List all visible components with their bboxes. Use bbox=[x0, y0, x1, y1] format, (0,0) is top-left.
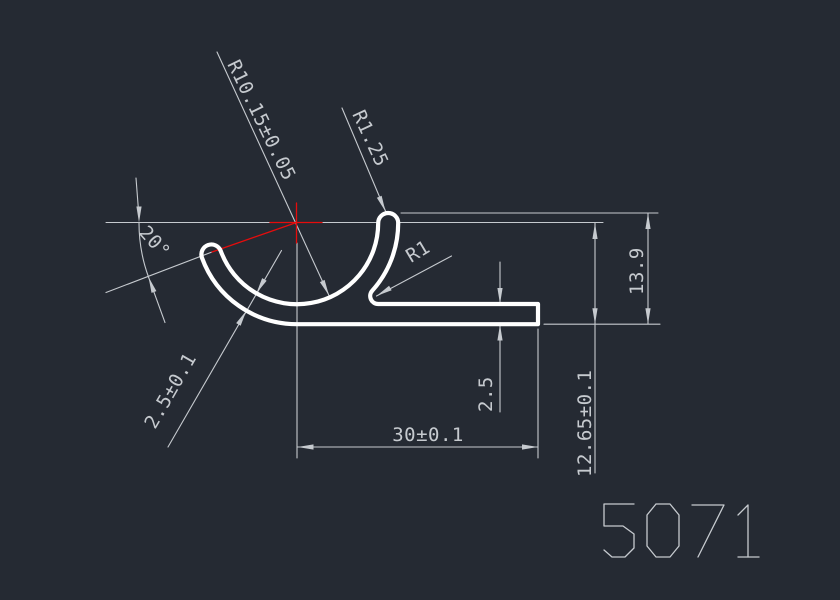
overall-height-label: 13.9 bbox=[626, 247, 648, 295]
center-height-label: 12.65±0.1 bbox=[574, 370, 596, 477]
cad-canvas: R10.15±0.05 R1.25 R1 20° 2.5±0.1 30±0.1 … bbox=[0, 0, 840, 600]
overall-width-label: 30±0.1 bbox=[392, 424, 464, 446]
drawing-background bbox=[0, 0, 840, 600]
flange-thickness-label: 2.5 bbox=[475, 376, 497, 412]
cad-viewport: R10.15±0.05 R1.25 R1 20° 2.5±0.1 30±0.1 … bbox=[0, 0, 840, 600]
